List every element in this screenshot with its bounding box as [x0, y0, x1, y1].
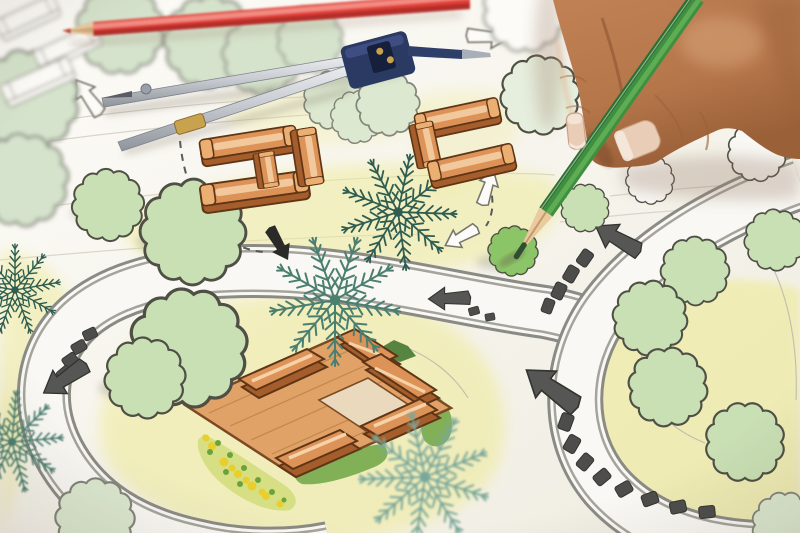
plan-scene [0, 0, 800, 533]
photo-vignette [0, 0, 800, 533]
landscape-plan-photo: Close-up photo of a landscape architect'… [0, 0, 800, 533]
